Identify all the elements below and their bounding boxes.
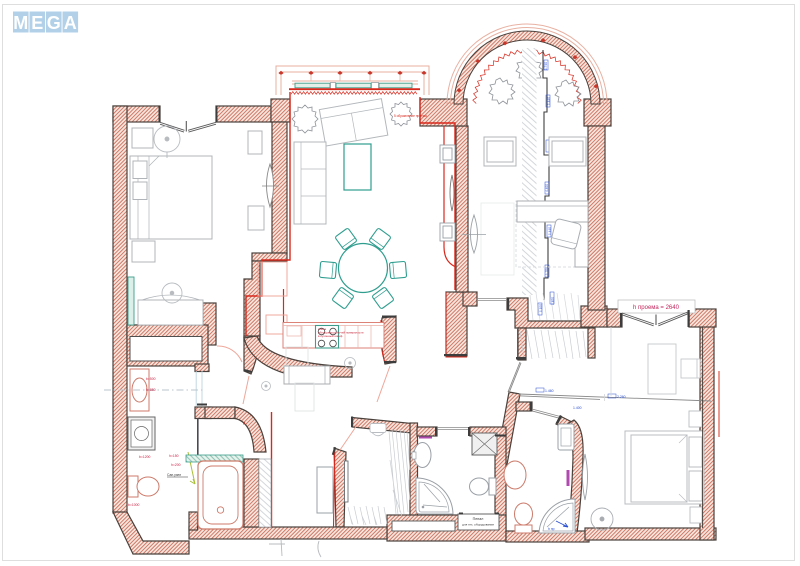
- svg-text:Пенал: Пенал: [473, 517, 484, 521]
- svg-text:для тех. оборудования: для тех. оборудования: [462, 523, 494, 527]
- svg-text:A: A: [64, 13, 77, 33]
- svg-text:1.400: 1.400: [573, 406, 582, 410]
- svg-text:1.700: 1.700: [545, 267, 549, 275]
- svg-text:h проема = 2640: h проема = 2640: [633, 305, 680, 311]
- svg-text:h=850: h=850: [146, 388, 156, 392]
- svg-text:M: M: [13, 13, 28, 33]
- svg-text:b=1200: b=1200: [139, 455, 151, 459]
- svg-text:1.740: 1.740: [544, 62, 548, 70]
- svg-text:1.100: 1.100: [539, 304, 543, 312]
- svg-text:1.440: 1.440: [547, 97, 551, 105]
- svg-text:E: E: [31, 13, 43, 33]
- svg-text:5 обрамление проема: 5 обрамление проема: [394, 114, 427, 118]
- svg-text:в кухонный шкаф: в кухонный шкаф: [318, 334, 343, 338]
- svg-text:h=200: h=200: [171, 463, 181, 467]
- svg-text:h пр: h пр: [548, 527, 555, 531]
- svg-text:4.400: 4.400: [545, 184, 549, 192]
- svg-text:1.440: 1.440: [548, 227, 552, 235]
- svg-text:2.260: 2.260: [617, 395, 626, 399]
- svg-text:1.460: 1.460: [545, 389, 554, 393]
- svg-text:Сан.узел: Сан.узел: [167, 473, 181, 477]
- svg-text:G: G: [47, 13, 61, 33]
- svg-text:b=500: b=500: [146, 377, 156, 381]
- svg-text:h=150: h=150: [169, 454, 179, 458]
- svg-text:b=1000: b=1000: [128, 503, 140, 507]
